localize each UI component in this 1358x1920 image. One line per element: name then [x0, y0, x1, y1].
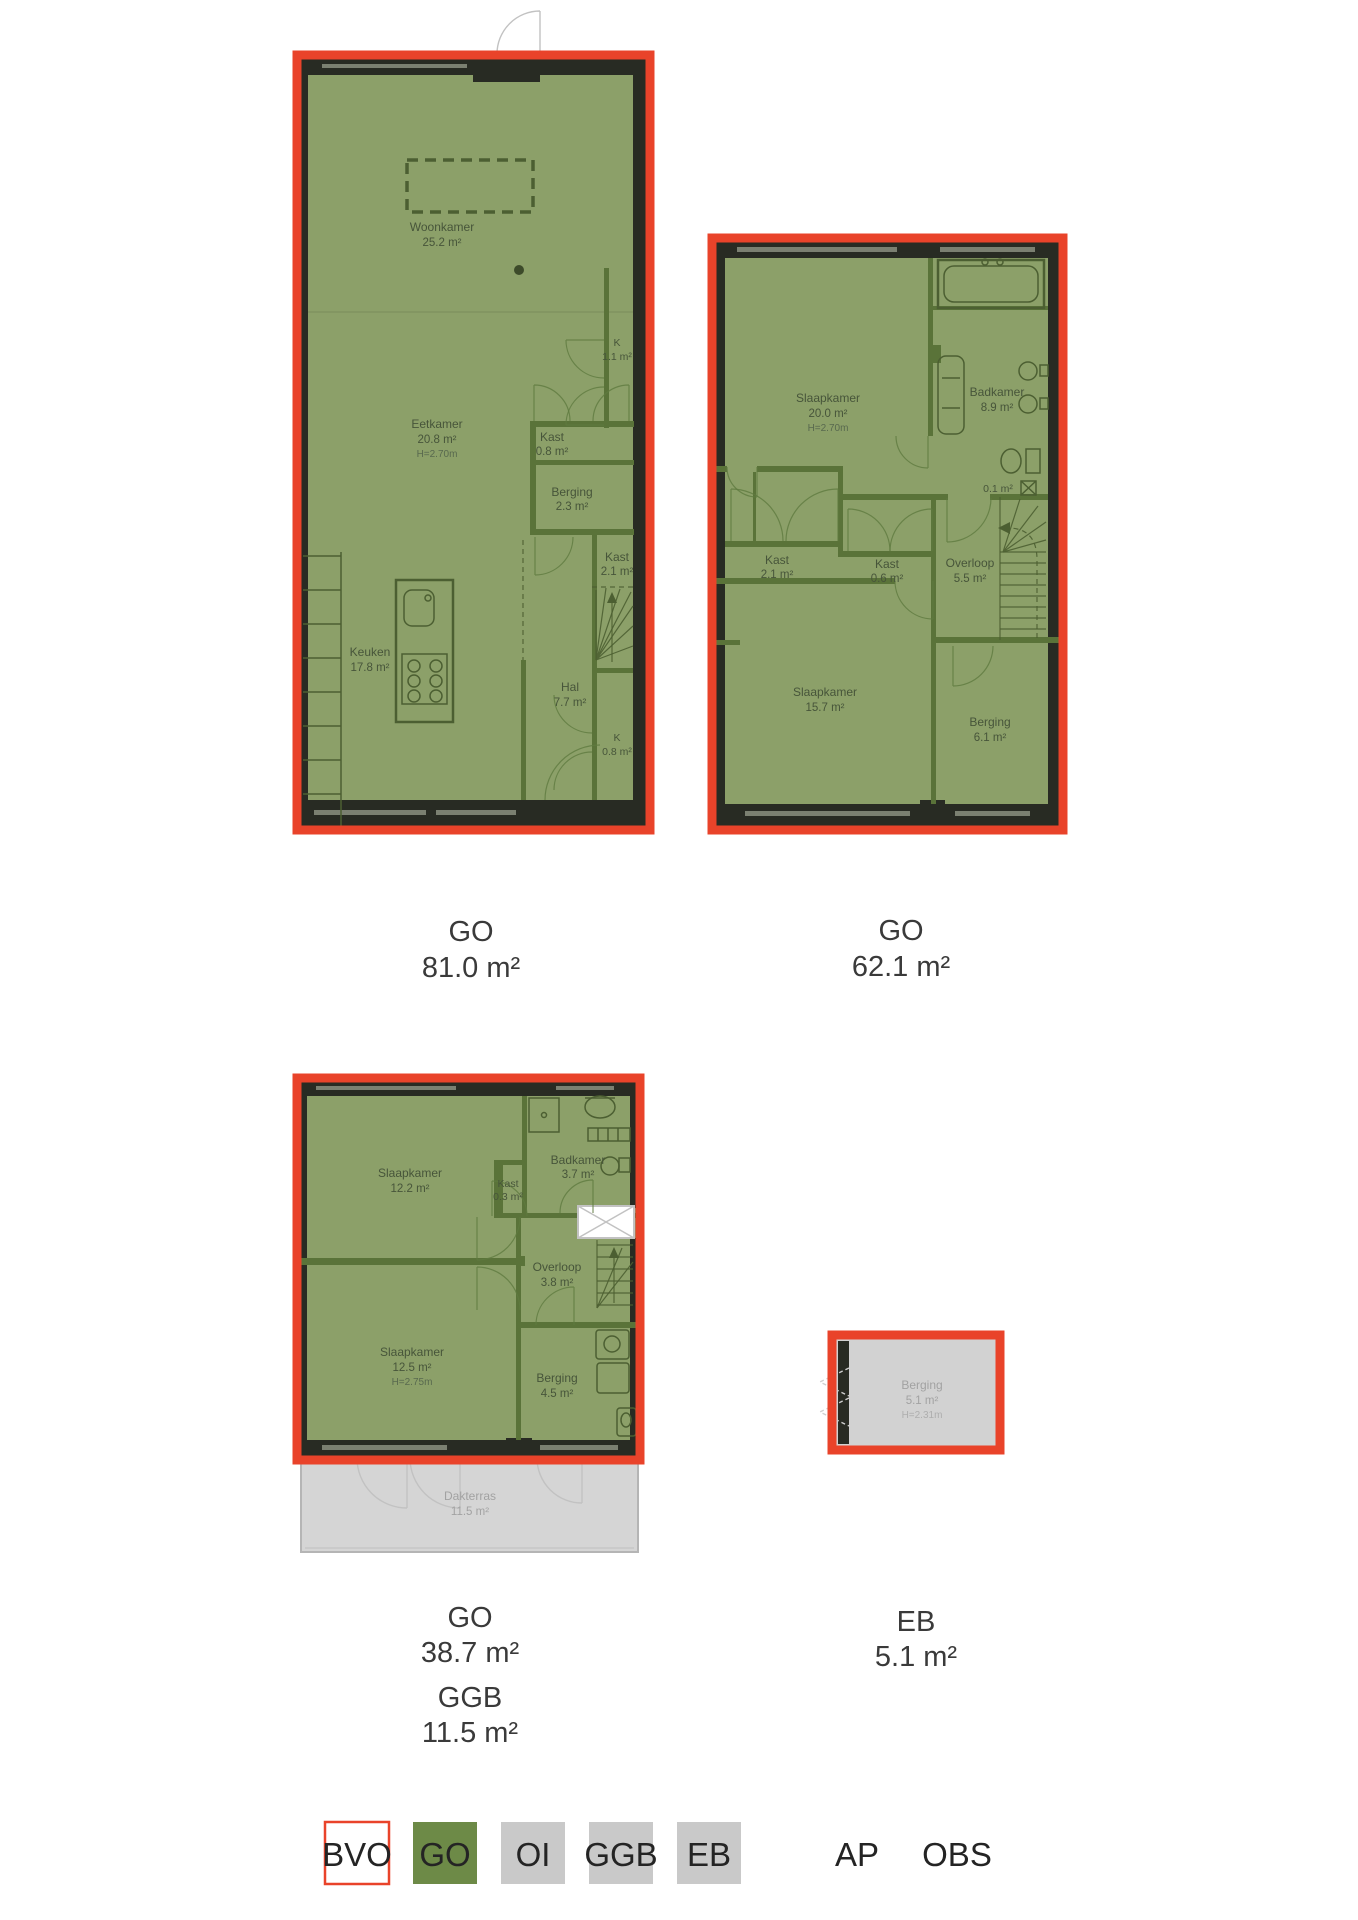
- floorplan-canvas: Woonkamer 25.2 m² Eetkamer 20.8 m² H=2.7…: [0, 0, 1358, 1920]
- svg-text:3.7 m²: 3.7 m²: [562, 1169, 595, 1181]
- plan-external-storage: Berging 5.1 m² H=2.31m: [820, 1335, 1000, 1450]
- svg-text:H=2.31m: H=2.31m: [902, 1410, 943, 1421]
- svg-text:K: K: [613, 732, 620, 744]
- room-area: 25.2 m²: [423, 237, 462, 249]
- room-label-berging: Berging 5.1 m² H=2.31m: [901, 1378, 942, 1421]
- summary-value: 62.1 m²: [852, 951, 951, 983]
- svg-text:12.5 m²: 12.5 m²: [393, 1362, 432, 1374]
- summary-value: 11.5 m²: [422, 1717, 519, 1749]
- svg-text:0.8 m²: 0.8 m²: [536, 446, 569, 458]
- svg-text:Slaapkamer: Slaapkamer: [793, 685, 857, 699]
- svg-text:5.5 m²: 5.5 m²: [954, 573, 987, 585]
- svg-text:17.8 m²: 17.8 m²: [351, 662, 390, 674]
- svg-text:Berging: Berging: [551, 485, 592, 499]
- svg-text:20.8 m²: 20.8 m²: [418, 434, 457, 446]
- svg-text:0.6 m²: 0.6 m²: [871, 573, 904, 585]
- summary-value: 5.1 m²: [875, 1641, 958, 1673]
- svg-text:5.1 m²: 5.1 m²: [906, 1395, 939, 1407]
- svg-text:12.2 m²: 12.2 m²: [391, 1183, 430, 1195]
- legend-label-ap: AP: [835, 1836, 879, 1873]
- plan-first-floor: Woonkamer 25.2 m² Eetkamer 20.8 m² H=2.7…: [297, 11, 650, 830]
- svg-text:Slaapkamer: Slaapkamer: [796, 391, 860, 405]
- legend-label-eb: EB: [687, 1836, 731, 1873]
- floorplan-sheet: Woonkamer 25.2 m² Eetkamer 20.8 m² H=2.7…: [0, 0, 1358, 1920]
- svg-text:Slaapkamer: Slaapkamer: [380, 1345, 444, 1359]
- svg-text:Badkamer: Badkamer: [551, 1153, 606, 1167]
- svg-text:H=2.70m: H=2.70m: [417, 449, 458, 460]
- exterior-wall: [838, 1341, 849, 1444]
- svg-text:Overloop: Overloop: [946, 556, 995, 570]
- summary-code: GO: [878, 915, 923, 947]
- svg-text:Kast: Kast: [605, 550, 630, 564]
- svg-text:H=2.70m: H=2.70m: [808, 423, 849, 434]
- legend-label-bvo: BVO: [322, 1836, 392, 1873]
- svg-text:11.5 m²: 11.5 m²: [451, 1506, 489, 1518]
- svg-text:K: K: [613, 337, 620, 349]
- void-hatch: [578, 1206, 634, 1238]
- floor-area-go: [301, 1082, 636, 1456]
- svg-text:1.1 m²: 1.1 m²: [602, 351, 632, 363]
- room-label-duct-area: 0.1 m²: [983, 483, 1013, 495]
- summary-value: 38.7 m²: [421, 1637, 520, 1669]
- svg-text:15.7 m²: 15.7 m²: [806, 702, 845, 714]
- svg-text:Badkamer: Badkamer: [970, 385, 1025, 399]
- room-label-eetkamer: Eetkamer 20.8 m² H=2.70m: [411, 417, 462, 460]
- svg-text:H=2.75m: H=2.75m: [392, 1377, 433, 1388]
- summary-value: 81.0 m²: [422, 952, 521, 984]
- roof-terrace: Dakterras 11.5 m²: [301, 1458, 638, 1552]
- room-name: Woonkamer: [410, 220, 474, 234]
- svg-text:Kast: Kast: [540, 430, 565, 444]
- svg-text:4.5 m²: 4.5 m²: [541, 1388, 574, 1400]
- plan-second-floor: Slaapkamer 20.0 m² H=2.70m Badkamer 8.9 …: [712, 238, 1063, 830]
- svg-text:2.3 m²: 2.3 m²: [556, 501, 589, 513]
- svg-text:0.8 m²: 0.8 m²: [602, 746, 632, 758]
- svg-text:Keuken: Keuken: [350, 645, 391, 659]
- svg-text:3.8 m²: 3.8 m²: [541, 1277, 574, 1289]
- column-dot: [514, 265, 524, 275]
- legend-label-go: GO: [419, 1836, 470, 1873]
- svg-text:0.3 m²: 0.3 m²: [493, 1191, 523, 1203]
- svg-text:Berging: Berging: [969, 715, 1010, 729]
- room-label-dakterras: Dakterras: [444, 1489, 496, 1503]
- legend-label-obs: OBS: [922, 1836, 992, 1873]
- svg-text:Kast: Kast: [765, 553, 790, 567]
- svg-text:Hal: Hal: [561, 680, 579, 694]
- svg-text:Slaapkamer: Slaapkamer: [378, 1166, 442, 1180]
- svg-text:6.1 m²: 6.1 m²: [974, 732, 1007, 744]
- svg-text:Eetkamer: Eetkamer: [411, 417, 462, 431]
- legend-label-oi: OI: [516, 1836, 551, 1873]
- svg-text:7.7 m²: 7.7 m²: [554, 697, 587, 709]
- svg-text:2.1 m²: 2.1 m²: [761, 569, 794, 581]
- plan-third-floor: Dakterras 11.5 m²: [297, 1078, 640, 1552]
- summary-code: EB: [897, 1606, 936, 1638]
- summary-code: GO: [447, 1602, 492, 1634]
- svg-text:Kast: Kast: [497, 1178, 518, 1190]
- summary-code: GGB: [438, 1682, 502, 1714]
- summary-code: GO: [448, 916, 493, 948]
- svg-text:2.1 m²: 2.1 m²: [601, 566, 634, 578]
- svg-text:Overloop: Overloop: [533, 1260, 582, 1274]
- terrace-area-ggb: [301, 1458, 638, 1552]
- svg-text:Berging: Berging: [901, 1378, 942, 1392]
- legend: BVO GO OI GGB EB AP OBS: [322, 1822, 992, 1884]
- svg-text:Berging: Berging: [536, 1371, 577, 1385]
- svg-text:Kast: Kast: [875, 557, 900, 571]
- svg-text:8.9 m²: 8.9 m²: [981, 402, 1014, 414]
- svg-text:20.0 m²: 20.0 m²: [809, 408, 848, 420]
- legend-label-ggb: GGB: [584, 1836, 657, 1873]
- entrance-door-arc: [497, 11, 540, 54]
- storage-area-eb: [836, 1339, 996, 1446]
